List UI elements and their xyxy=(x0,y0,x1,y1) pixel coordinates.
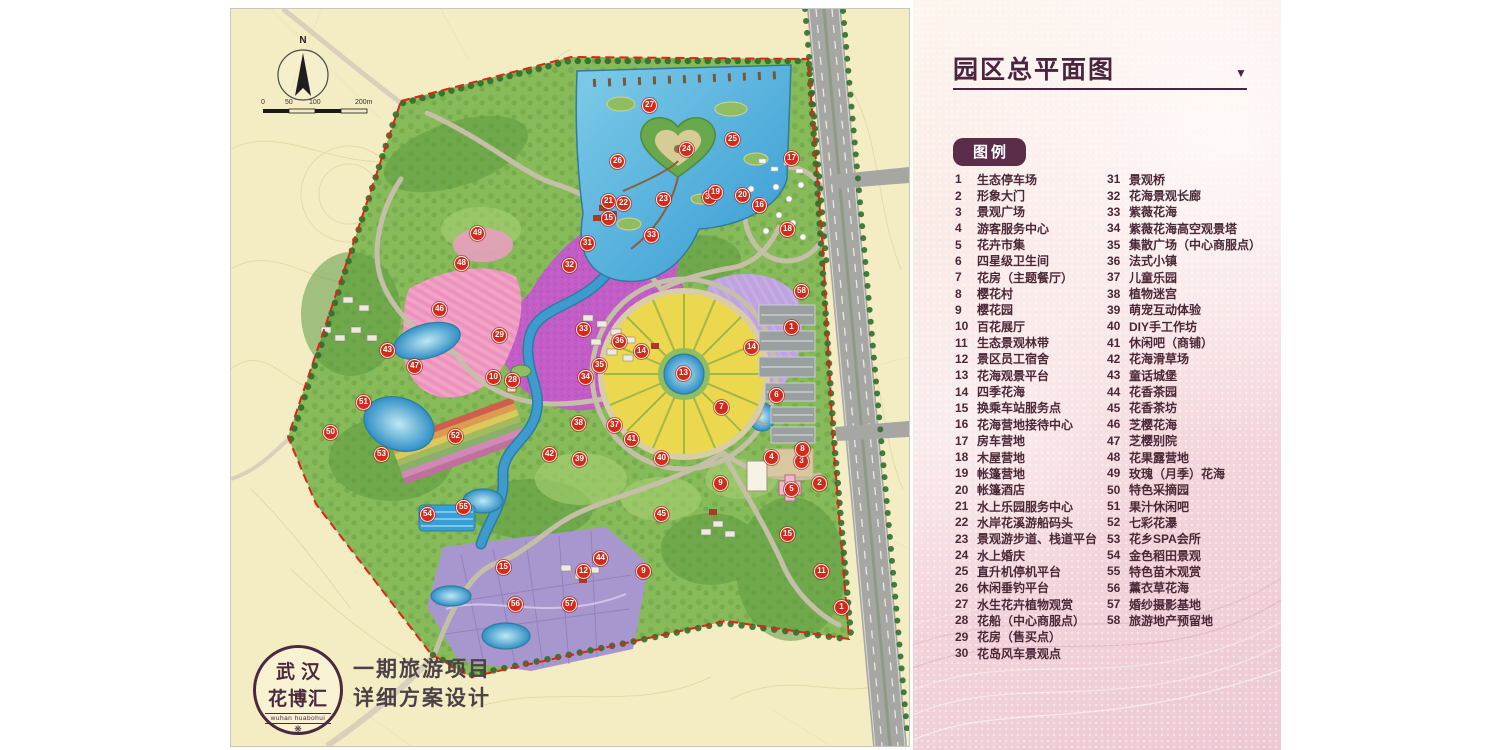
map-marker-15: 15 xyxy=(780,527,795,542)
map-marker-13: 13 xyxy=(676,366,691,381)
legend-item-number: 4 xyxy=(955,221,977,235)
legend-item-58: 58旅游地产预留地 xyxy=(1107,612,1261,628)
map-marker-56: 56 xyxy=(508,597,523,612)
legend-item-number: 17 xyxy=(955,434,977,448)
legend-item-label: 水上婚庆 xyxy=(977,547,1025,564)
legend-item-33: 33紫薇花海 xyxy=(1107,204,1261,220)
map-marker-5: 5 xyxy=(784,482,799,497)
legend-item-53: 53花乡SPA会所 xyxy=(1107,531,1261,547)
legend-item-label: 芝樱别院 xyxy=(1129,432,1177,449)
legend-item-label: 木屋营地 xyxy=(977,449,1025,466)
map-marker-22: 22 xyxy=(616,196,631,211)
legend-item-number: 14 xyxy=(955,385,977,399)
legend-item-number: 15 xyxy=(955,401,977,415)
legend-item-label: 景观广场 xyxy=(977,203,1025,220)
map-marker-42: 42 xyxy=(542,447,557,462)
legend-item-number: 58 xyxy=(1107,613,1129,627)
legend-item-16: 16花海营地接待中心 xyxy=(955,416,1097,432)
legend-item-34: 34紫薇花海高空观景塔 xyxy=(1107,220,1261,236)
legend-item-17: 17房车营地 xyxy=(955,433,1097,449)
legend-item-number: 44 xyxy=(1107,385,1129,399)
legend-item-label: 花卉市集 xyxy=(977,236,1025,253)
map-marker-44: 44 xyxy=(593,551,608,566)
map-marker-6: 6 xyxy=(769,388,784,403)
legend-item-label: 集散广场（中心商服点） xyxy=(1129,236,1261,253)
map-marker-23: 23 xyxy=(656,192,671,207)
legend-item-label: 玫瑰（月季）花海 xyxy=(1129,465,1225,482)
legend-item-number: 7 xyxy=(955,270,977,284)
map-marker-20: 20 xyxy=(735,188,750,203)
legend-item-number: 25 xyxy=(955,564,977,578)
legend-item-number: 50 xyxy=(1107,483,1129,497)
map-marker-9: 9 xyxy=(713,476,728,491)
map-marker-57: 57 xyxy=(562,597,577,612)
legend-item-12: 12景区员工宿舍 xyxy=(955,351,1097,367)
map-marker-28: 28 xyxy=(505,373,520,388)
legend-item-label: 换乘车站服务点 xyxy=(977,399,1061,416)
legend-item-label: 水岸花溪游船码头 xyxy=(977,514,1073,531)
legend-item-31: 31景观桥 xyxy=(1107,171,1261,187)
legend-item-47: 47芝樱别院 xyxy=(1107,433,1261,449)
legend-item-number: 19 xyxy=(955,466,977,480)
legend-item-number: 30 xyxy=(955,646,977,660)
map-marker-41: 41 xyxy=(624,432,639,447)
map-marker-33: 33 xyxy=(576,322,591,337)
legend-item-label: 花香茶园 xyxy=(1129,383,1177,400)
chevron-down-icon[interactable]: ▼ xyxy=(1235,66,1247,80)
map-marker-48: 48 xyxy=(454,256,469,271)
legend-item-number: 20 xyxy=(955,483,977,497)
legend-item-26: 26休闲垂钓平台 xyxy=(955,580,1097,596)
legend-item-number: 5 xyxy=(955,238,977,252)
legend-item-6: 6四星级卫生间 xyxy=(955,253,1097,269)
map-marker-26: 26 xyxy=(610,154,625,169)
map-marker-51: 51 xyxy=(356,395,371,410)
map-marker-10: 10 xyxy=(486,370,501,385)
legend-item-number: 35 xyxy=(1107,238,1129,252)
map-marker-36: 36 xyxy=(612,334,627,349)
page: { "panel": { "title": "园区总平面图", "dropdow… xyxy=(0,0,1500,750)
legend-item-label: 景观游步道、栈道平台 xyxy=(977,530,1097,547)
legend-item-10: 10百花展厅 xyxy=(955,318,1097,334)
legend-item-number: 37 xyxy=(1107,270,1129,284)
legend-item-number: 6 xyxy=(955,254,977,268)
title-underline xyxy=(953,88,1247,90)
legend-item-number: 26 xyxy=(955,581,977,595)
legend-item-number: 43 xyxy=(1107,368,1129,382)
legend-item-label: 直升机停机平台 xyxy=(977,563,1061,580)
legend-item-number: 16 xyxy=(955,417,977,431)
legend-item-5: 5花卉市集 xyxy=(955,236,1097,252)
legend-item-50: 50特色采摘园 xyxy=(1107,482,1261,498)
map-marker-53: 53 xyxy=(374,447,389,462)
legend-item-number: 8 xyxy=(955,287,977,301)
map-marker-14: 14 xyxy=(744,340,759,355)
legend-item-44: 44花香茶园 xyxy=(1107,383,1261,399)
map-marker-14: 14 xyxy=(634,344,649,359)
legend-item-2: 2形象大门 xyxy=(955,187,1097,203)
legend-item-label: 生态停车场 xyxy=(977,171,1037,188)
legend-item-number: 9 xyxy=(955,303,977,317)
map-marker-58: 58 xyxy=(794,284,809,299)
map-marker-43: 43 xyxy=(380,343,395,358)
map-marker-50: 50 xyxy=(323,425,338,440)
panel-title: 园区总平面图 xyxy=(953,50,1115,86)
legend-item-8: 8樱花村 xyxy=(955,285,1097,301)
legend-item-number: 54 xyxy=(1107,548,1129,562)
map-marker-33: 33 xyxy=(644,228,659,243)
legend-item-number: 32 xyxy=(1107,189,1129,203)
map-marker-24: 24 xyxy=(679,142,694,157)
legend-item-43: 43童话城堡 xyxy=(1107,367,1261,383)
legend-item-label: 花海观景平台 xyxy=(977,367,1049,384)
legend-item-36: 36法式小镇 xyxy=(1107,253,1261,269)
logo-line2: 花博汇 xyxy=(256,684,340,711)
legend-item-32: 32花海景观长廊 xyxy=(1107,187,1261,203)
legend-item-number: 46 xyxy=(1107,417,1129,431)
legend-item-38: 38植物迷宫 xyxy=(1107,285,1261,301)
legend-item-number: 42 xyxy=(1107,352,1129,366)
legend-item-label: 四星级卫生间 xyxy=(977,252,1049,269)
project-title-line1: 一期旅游项目 xyxy=(353,655,491,684)
legend-item-label: 樱花园 xyxy=(977,301,1013,318)
legend-item-56: 56薰衣草花海 xyxy=(1107,580,1261,596)
legend-item-number: 31 xyxy=(1107,172,1129,186)
map-marker-34: 34 xyxy=(578,370,593,385)
map-marker-37: 37 xyxy=(607,418,622,433)
legend-item-20: 20帐篷酒店 xyxy=(955,482,1097,498)
legend-item-label: 帐篷营地 xyxy=(977,465,1025,482)
legend-item-number: 10 xyxy=(955,319,977,333)
legend-item-label: 薰衣草花海 xyxy=(1129,579,1189,596)
map-marker-9: 9 xyxy=(636,564,651,579)
legend-item-number: 52 xyxy=(1107,515,1129,529)
map-marker-1: 1 xyxy=(784,320,799,335)
legend-item-number: 24 xyxy=(955,548,977,562)
legend-item-label: 水生花卉植物观赏 xyxy=(977,596,1073,613)
legend-item-label: 婚纱摄影基地 xyxy=(1129,596,1201,613)
brand-logo: 武汉 花博汇 wuhan huabohui ❋ xyxy=(253,645,343,735)
legend-item-label: 景观桥 xyxy=(1129,171,1165,188)
legend-item-label: 樱花村 xyxy=(977,285,1013,302)
legend-item-7: 7花房（主题餐厅） xyxy=(955,269,1097,285)
legend-item-55: 55特色苗木观赏 xyxy=(1107,563,1261,579)
logo-subtitle: wuhan huabohui xyxy=(265,713,331,724)
map-marker-18: 18 xyxy=(780,222,795,237)
legend-item-18: 18木屋营地 xyxy=(955,449,1097,465)
legend-item-number: 36 xyxy=(1107,254,1129,268)
legend-item-label: 休闲吧（商铺） xyxy=(1129,334,1213,351)
legend-item-22: 22水岸花溪游船码头 xyxy=(955,514,1097,530)
legend-item-label: 花乡SPA会所 xyxy=(1129,530,1201,547)
legend-item-49: 49玫瑰（月季）花海 xyxy=(1107,465,1261,481)
legend-item-37: 37儿童乐园 xyxy=(1107,269,1261,285)
legend-item-24: 24水上婚庆 xyxy=(955,547,1097,563)
map-marker-55: 55 xyxy=(456,500,471,515)
legend-item-number: 56 xyxy=(1107,581,1129,595)
legend-item-number: 45 xyxy=(1107,401,1129,415)
legend-item-label: 旅游地产预留地 xyxy=(1129,612,1213,629)
legend-item-number: 11 xyxy=(955,336,977,350)
site-plan-map: 0 50 100 200m N 272425262122152330192016… xyxy=(230,8,910,747)
legend-item-number: 28 xyxy=(955,613,977,627)
legend-item-57: 57婚纱摄影基地 xyxy=(1107,596,1261,612)
legend-item-label: 形象大门 xyxy=(977,187,1025,204)
legend-item-number: 2 xyxy=(955,189,977,203)
legend-item-label: 游客服务中心 xyxy=(977,220,1049,237)
legend-item-label: 金色稻田景观 xyxy=(1129,547,1201,564)
map-marker-40: 40 xyxy=(654,451,669,466)
legend-item-number: 3 xyxy=(955,205,977,219)
legend-item-number: 51 xyxy=(1107,499,1129,513)
legend-item-label: 水上乐园服务中心 xyxy=(977,498,1073,515)
map-marker-21: 21 xyxy=(601,194,616,209)
map-marker-25: 25 xyxy=(725,132,740,147)
legend-column-2: 31景观桥32花海景观长廊33紫薇花海34紫薇花海高空观景塔35集散广场（中心商… xyxy=(1107,171,1261,629)
legend-item-number: 40 xyxy=(1107,319,1129,333)
map-marker-17: 17 xyxy=(784,151,799,166)
logo-line1: 武汉 xyxy=(262,657,340,684)
legend-item-number: 48 xyxy=(1107,450,1129,464)
legend-item-46: 46芝樱花海 xyxy=(1107,416,1261,432)
project-title-line2: 详细方案设计 xyxy=(353,684,491,713)
legend-item-label: 花海滑草场 xyxy=(1129,350,1189,367)
legend-item-label: 紫薇花海高空观景塔 xyxy=(1129,220,1237,237)
legend-item-label: 花海景观长廊 xyxy=(1129,187,1201,204)
map-marker-47: 47 xyxy=(407,359,422,374)
legend-item-label: 百花展厅 xyxy=(977,318,1025,335)
map-marker-11: 11 xyxy=(814,564,829,579)
legend-panel: 园区总平面图 ▼ 图例 1生态停车场2形象大门3景观广场4游客服务中心5花卉市集… xyxy=(913,0,1281,750)
map-marker-15: 15 xyxy=(601,211,616,226)
legend-item-number: 38 xyxy=(1107,287,1129,301)
map-marker-31: 31 xyxy=(580,236,595,251)
legend-item-label: 果汁休闲吧 xyxy=(1129,498,1189,515)
legend-item-label: 花房（主题餐厅） xyxy=(977,269,1073,286)
legend-item-label: 特色苗木观赏 xyxy=(1129,563,1201,580)
legend-item-label: DIY手工作坊 xyxy=(1129,318,1197,335)
legend-item-29: 29花房（售买点） xyxy=(955,629,1097,645)
legend-item-label: 法式小镇 xyxy=(1129,252,1177,269)
legend-item-number: 57 xyxy=(1107,597,1129,611)
legend-item-label: 花船（中心商服点） xyxy=(977,612,1085,629)
legend-item-number: 22 xyxy=(955,515,977,529)
legend-item-label: 花香茶坊 xyxy=(1129,399,1177,416)
legend-item-number: 55 xyxy=(1107,564,1129,578)
legend-item-number: 49 xyxy=(1107,466,1129,480)
legend-item-label: 景区员工宿舍 xyxy=(977,350,1049,367)
legend-item-number: 41 xyxy=(1107,336,1129,350)
map-marker-29: 29 xyxy=(492,328,507,343)
map-marker-8: 8 xyxy=(795,442,810,457)
map-marker-39: 39 xyxy=(572,452,587,467)
legend-item-label: 房车营地 xyxy=(977,432,1025,449)
map-marker-45: 45 xyxy=(654,507,669,522)
legend-item-23: 23景观游步道、栈道平台 xyxy=(955,531,1097,547)
legend-item-48: 48花果露营地 xyxy=(1107,449,1261,465)
legend-item-label: 花岛风车景观点 xyxy=(977,645,1061,662)
map-marker-46: 46 xyxy=(432,302,447,317)
legend-item-19: 19帐篷营地 xyxy=(955,465,1097,481)
map-marker-38: 38 xyxy=(571,416,586,431)
legend-item-number: 21 xyxy=(955,499,977,513)
map-marker-27: 27 xyxy=(642,98,657,113)
legend-item-9: 9樱花园 xyxy=(955,302,1097,318)
map-marker-2: 2 xyxy=(812,476,827,491)
legend-item-42: 42花海滑草场 xyxy=(1107,351,1261,367)
legend-item-label: 花海营地接待中心 xyxy=(977,416,1073,433)
legend-item-label: 花果露营地 xyxy=(1129,449,1189,466)
legend-item-30: 30花岛风车景观点 xyxy=(955,645,1097,661)
map-marker-4: 4 xyxy=(764,450,779,465)
legend-item-41: 41休闲吧（商铺） xyxy=(1107,334,1261,350)
legend-item-number: 27 xyxy=(955,597,977,611)
map-marker-layer: 2724252621221523301920161718583132333334… xyxy=(231,9,909,746)
map-marker-16: 16 xyxy=(752,198,767,213)
legend-item-27: 27水生花卉植物观赏 xyxy=(955,596,1097,612)
legend-item-number: 29 xyxy=(955,630,977,644)
map-marker-35: 35 xyxy=(592,358,607,373)
map-marker-52: 52 xyxy=(448,429,463,444)
map-marker-49: 49 xyxy=(470,226,485,241)
legend-item-25: 25直升机停机平台 xyxy=(955,563,1097,579)
legend-item-label: 儿童乐园 xyxy=(1129,269,1177,286)
legend-item-number: 53 xyxy=(1107,532,1129,546)
legend-item-35: 35集散广场（中心商服点） xyxy=(1107,236,1261,252)
legend-item-13: 13花海观景平台 xyxy=(955,367,1097,383)
project-title: 一期旅游项目 详细方案设计 xyxy=(353,655,491,713)
legend-item-number: 13 xyxy=(955,368,977,382)
legend-item-label: 童话城堡 xyxy=(1129,367,1177,384)
map-marker-1: 1 xyxy=(834,600,849,615)
legend-item-number: 47 xyxy=(1107,434,1129,448)
legend-item-21: 21水上乐园服务中心 xyxy=(955,498,1097,514)
legend-item-label: 特色采摘园 xyxy=(1129,481,1189,498)
legend-item-52: 52七彩花瀑 xyxy=(1107,514,1261,530)
legend-item-3: 3景观广场 xyxy=(955,204,1097,220)
legend-item-label: 芝樱花海 xyxy=(1129,416,1177,433)
legend-item-label: 萌宠互动体验 xyxy=(1129,301,1201,318)
legend-item-51: 51果汁休闲吧 xyxy=(1107,498,1261,514)
legend-item-label: 生态景观林带 xyxy=(977,334,1049,351)
map-marker-7: 7 xyxy=(714,400,729,415)
map-marker-54: 54 xyxy=(420,507,435,522)
legend-item-number: 23 xyxy=(955,532,977,546)
legend-item-54: 54金色稻田景观 xyxy=(1107,547,1261,563)
legend-item-39: 39萌宠互动体验 xyxy=(1107,302,1261,318)
legend-item-label: 四季花海 xyxy=(977,383,1025,400)
legend-item-15: 15换乘车站服务点 xyxy=(955,400,1097,416)
legend-item-40: 40DIY手工作坊 xyxy=(1107,318,1261,334)
legend-item-label: 花房（售买点） xyxy=(977,628,1061,645)
legend-item-label: 植物迷宫 xyxy=(1129,285,1177,302)
legend-item-11: 11生态景观林带 xyxy=(955,334,1097,350)
legend-item-number: 18 xyxy=(955,450,977,464)
legend-column-1: 1生态停车场2形象大门3景观广场4游客服务中心5花卉市集6四星级卫生间7花房（主… xyxy=(955,171,1097,661)
legend-item-4: 4游客服务中心 xyxy=(955,220,1097,236)
legend-item-number: 33 xyxy=(1107,205,1129,219)
legend-item-label: 七彩花瀑 xyxy=(1129,514,1177,531)
map-marker-19: 19 xyxy=(708,185,723,200)
legend-item-number: 39 xyxy=(1107,303,1129,317)
legend-item-45: 45花香茶坊 xyxy=(1107,400,1261,416)
legend-item-1: 1生态停车场 xyxy=(955,171,1097,187)
legend-item-label: 紫薇花海 xyxy=(1129,203,1177,220)
legend-item-number: 34 xyxy=(1107,221,1129,235)
flower-icon: ❋ xyxy=(256,724,340,734)
legend-item-28: 28花船（中心商服点） xyxy=(955,612,1097,628)
map-marker-12: 12 xyxy=(576,564,591,579)
legend-badge: 图例 xyxy=(953,138,1026,166)
map-marker-32: 32 xyxy=(562,258,577,273)
map-marker-15: 15 xyxy=(496,560,511,575)
legend-item-label: 休闲垂钓平台 xyxy=(977,579,1049,596)
legend-item-number: 1 xyxy=(955,172,977,186)
legend-item-14: 14四季花海 xyxy=(955,383,1097,399)
legend-item-number: 12 xyxy=(955,352,977,366)
legend-item-label: 帐篷酒店 xyxy=(977,481,1025,498)
